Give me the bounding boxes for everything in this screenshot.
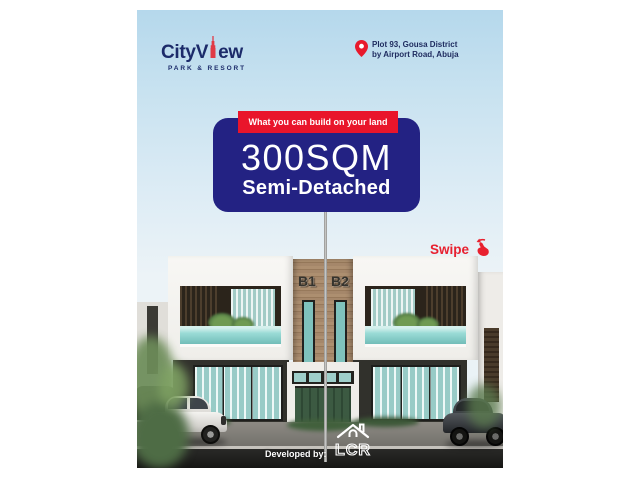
location-pin-icon xyxy=(355,40,368,62)
developer-footer: Developed by: LCR xyxy=(265,422,374,466)
car-pillar xyxy=(187,398,190,409)
tower-narrow-window xyxy=(302,300,315,364)
location-line2: by Airport Road, Abuja xyxy=(372,50,459,60)
unit-b1-sign: B1 xyxy=(293,273,321,289)
flyer-slide: B1 B2 CityV xyxy=(137,10,503,468)
swipe-label[interactable]: Swipe xyxy=(430,242,469,257)
swipe-hand-icon[interactable] xyxy=(472,236,494,263)
location-line1: Plot 93, Gousa District xyxy=(372,40,459,50)
balcony-recess-left xyxy=(180,286,281,328)
glass-balustrade-left xyxy=(180,326,281,347)
brand-logo: CityV ew PARK & RESORT xyxy=(161,36,246,72)
unit-b2-sign: B2 xyxy=(326,273,354,289)
entrance-window-strip xyxy=(292,371,354,384)
glass-balustrade-right xyxy=(365,326,466,347)
brand-name-prefix: CityV xyxy=(161,43,208,62)
house-type-label: Semi-Detached xyxy=(213,177,420,200)
offer-card: What you can build on your land 300SQM S… xyxy=(213,118,420,212)
location-address: Plot 93, Gousa District by Airport Road,… xyxy=(372,40,459,61)
brand-name-suffix: ew xyxy=(218,43,243,62)
foliage-blur xyxy=(467,384,501,428)
car-grille xyxy=(221,416,226,425)
city-tower-icon xyxy=(209,36,217,62)
offer-banner: What you can build on your land xyxy=(238,111,398,133)
location-block: Plot 93, Gousa District by Airport Road,… xyxy=(355,40,459,62)
lcr-logo: LCR xyxy=(332,419,374,466)
developed-by-label: Developed by: xyxy=(265,449,327,466)
foliage-blur xyxy=(159,364,189,408)
tower-narrow-window xyxy=(334,300,347,364)
car-wheel xyxy=(486,427,503,446)
lcr-wordmark: LCR xyxy=(335,442,371,459)
brand-name: CityV ew xyxy=(161,36,246,62)
plot-size-headline: 300SQM xyxy=(213,139,420,177)
swipe-indicator[interactable]: Swipe xyxy=(430,236,494,263)
brand-tagline: PARK & RESORT xyxy=(168,65,246,72)
balcony-recess-right xyxy=(365,286,466,328)
car-wheel xyxy=(450,427,469,446)
car-wheel xyxy=(201,425,220,444)
